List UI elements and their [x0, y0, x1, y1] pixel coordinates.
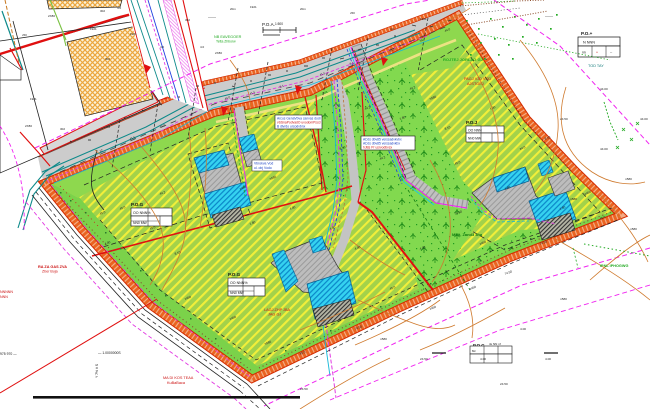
svg-text:1921: 1921 [250, 5, 257, 9]
svg-text:AJSTGEJ: AJSTGEJ [467, 82, 484, 86]
svg-text:4.00: 4.00 [480, 357, 486, 361]
svg-text:NNN: NNN [0, 295, 8, 299]
svg-text:——: —— [545, 13, 553, 18]
svg-text:NN0 MW: NN0 MW [133, 221, 148, 225]
svg-text:2X80: 2X80 [48, 14, 55, 18]
svg-text:x50: x50 [350, 11, 355, 15]
svg-text:LAGJ ZHP JBA: LAGJ ZHP JBA [264, 308, 291, 312]
svg-text:Mbit, Zand3 4ha: Mbit, Zand3 4ha [452, 232, 483, 237]
svg-text:302: 302 [100, 9, 105, 13]
svg-text:4.00: 4.00 [520, 327, 526, 331]
svg-text:nn: nn [582, 51, 586, 55]
svg-text:— 1.0000000S: — 1.0000000S [98, 351, 121, 355]
svg-text:Zber Buja: Zber Buja [42, 270, 58, 274]
svg-text:NB EAVEGOER: NB EAVEGOER [214, 35, 242, 39]
svg-text:PAGJ VJD VOD: PAGJ VJD VOD [464, 77, 491, 81]
svg-text:su: su [472, 349, 476, 353]
svg-text:B dlvrdo ursodvbnx: B dlvrdo ursodvbnx [277, 125, 306, 129]
svg-text:24.50: 24.50 [560, 117, 568, 121]
svg-text:IPNL IPHOGWG: IPNL IPHOGWG [600, 264, 628, 268]
svg-text:302: 302 [60, 127, 65, 131]
svg-text:OO NNN%: OO NNN% [133, 211, 151, 215]
svg-text:4.0: 4.0 [200, 45, 205, 49]
svg-text:302: 302 [185, 18, 190, 22]
svg-text:n580: n580 [625, 177, 632, 181]
svg-text:P.O.J: P.O.J [466, 120, 478, 125]
svg-text:NNNNN: NNNNN [0, 290, 13, 294]
svg-text:——: —— [208, 14, 216, 19]
svg-text:TOD TAY: TOD TAY [588, 64, 604, 68]
svg-text:4x NN nf: 4x NN nf [489, 342, 501, 346]
svg-text:20m: 20m [300, 7, 306, 11]
svg-text:2X80: 2X80 [215, 51, 222, 55]
svg-text:NN0 MW: NN0 MW [468, 137, 481, 141]
svg-text:hJBs Pr usrvodbvsx: hJBs Pr usrvodbvsx [363, 146, 392, 150]
svg-text:24.50: 24.50 [500, 382, 508, 386]
svg-text:4.0: 4.0 [390, 27, 395, 31]
svg-text:--: -- [610, 51, 612, 55]
svg-text:24.50: 24.50 [420, 357, 428, 361]
svg-text:P.O.G: P.O.G [228, 272, 241, 277]
svg-text:n580: n580 [570, 197, 577, 201]
svg-text:MA DI KOS TEAA: MA DI KOS TEAA [163, 376, 194, 380]
svg-text:4.00: 4.00 [545, 357, 551, 361]
svg-text:24.50: 24.50 [300, 387, 308, 391]
svg-text:N NNN: N NNN [583, 41, 595, 45]
svg-text:20m: 20m [230, 7, 236, 11]
svg-text:4.0: 4.0 [160, 45, 165, 49]
svg-text:OO NNN%: OO NNN% [230, 281, 248, 285]
svg-text:2X80: 2X80 [25, 124, 32, 128]
svg-text:975 970 —: 975 970 — [0, 352, 17, 356]
svg-text:4.0: 4.0 [117, 6, 122, 10]
svg-text:44.00: 44.00 [600, 87, 608, 91]
svg-text:1921: 1921 [90, 27, 97, 31]
svg-text:ROJTEJ JORLAG GJ: ROJTEJ JORLAG GJ [443, 57, 483, 62]
svg-text:KuBaBaca: KuBaBaca [167, 381, 186, 385]
svg-text:1921: 1921 [130, 32, 137, 36]
svg-text:1921: 1921 [420, 17, 427, 21]
svg-text:P.O.+: P.O.+ [581, 31, 593, 36]
svg-text:x50: x50 [22, 33, 27, 37]
svg-text:n580: n580 [560, 297, 567, 301]
svg-text:RA ZA GAS ZVA: RA ZA GAS ZVA [38, 265, 67, 269]
svg-text:Vbrokva Vod: Vbrokva Vod [254, 162, 273, 166]
svg-text:OO NNN: OO NNN [468, 129, 482, 133]
svg-text:ul. obj Vodo: ul. obj Vodo [254, 166, 272, 170]
svg-text:P.O.G: P.O.G [131, 202, 144, 207]
svg-text:NN0 MW: NN0 MW [230, 291, 245, 295]
svg-text:1:500: 1:500 [275, 22, 283, 26]
svg-text:n580: n580 [380, 337, 387, 341]
svg-text:P.O.A.: P.O.A. [262, 22, 275, 27]
svg-text:302: 302 [105, 57, 110, 61]
svg-text:44.00: 44.00 [640, 117, 648, 121]
svg-text:1921: 1921 [30, 97, 37, 101]
svg-text:Y 7% # S: Y 7% # S [95, 363, 99, 378]
svg-text:n580: n580 [630, 227, 637, 231]
svg-text:JAG GJ: JAG GJ [268, 313, 281, 317]
svg-text:Tetta Zhborw: Tetta Zhborw [216, 40, 236, 44]
svg-text:44.00: 44.00 [600, 147, 608, 151]
svg-text:+: + [596, 51, 598, 55]
